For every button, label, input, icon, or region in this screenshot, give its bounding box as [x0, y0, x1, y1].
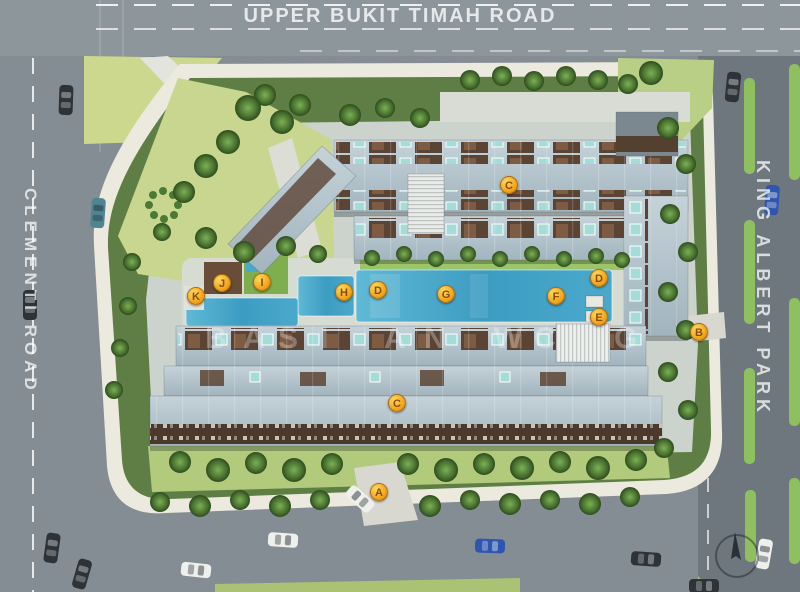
watermark-letter: A [384, 322, 407, 356]
marker-d-east: D [590, 269, 608, 287]
marker-a: A [370, 483, 388, 501]
watermark-letter: B [205, 322, 228, 356]
car [475, 538, 505, 553]
marker-b: B [690, 323, 708, 341]
road-label-king-albert-park: KING ALBERT PARK [752, 160, 773, 417]
marker-d-pool: D [369, 281, 387, 299]
marker-f: F [547, 287, 565, 305]
marker-j: J [213, 274, 231, 292]
car [631, 551, 662, 567]
watermark-letter: W [494, 322, 523, 356]
south-mid-block [164, 366, 648, 396]
site-plan-graphic [0, 0, 800, 592]
watermark-letter: A [243, 322, 266, 356]
marker-h: H [335, 283, 353, 301]
watermark-letter: C [534, 322, 557, 356]
south-block [150, 396, 662, 451]
watermark-letter: S [278, 322, 299, 356]
marker-g: G [437, 285, 455, 303]
car [90, 198, 106, 229]
marker-i: I [253, 273, 271, 291]
car [58, 85, 73, 115]
pool-area [182, 254, 642, 330]
watermark-letter: I [320, 322, 329, 356]
car [689, 579, 719, 592]
watermark-letter: N [424, 322, 447, 356]
marker-k: K [187, 287, 205, 305]
marker-c-north: C [500, 176, 518, 194]
watermark-letter: G [614, 322, 638, 356]
car [268, 532, 299, 548]
road-label-clementi: CLEMENTI ROAD [20, 188, 40, 395]
marker-c-south: C [388, 394, 406, 412]
marker-e: E [590, 308, 608, 326]
site-plan: UPPER BUKIT TIMAH ROAD CLEMENTI ROAD KIN… [0, 0, 800, 592]
road-label-upper-bukit-timah: UPPER BUKIT TIMAH ROAD [0, 5, 800, 28]
